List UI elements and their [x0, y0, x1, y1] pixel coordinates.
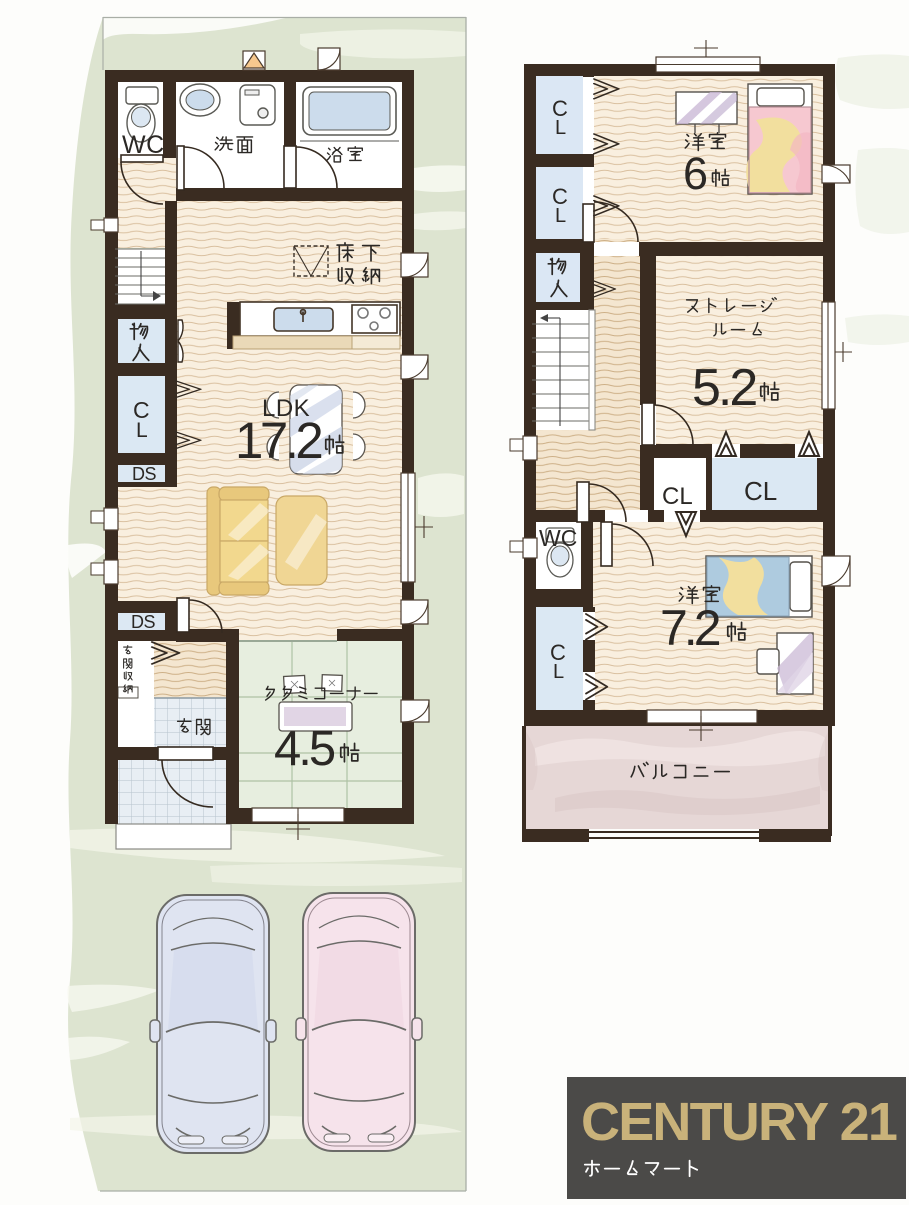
svg-text:CENTURY 21: CENTURY 21: [581, 1092, 897, 1152]
svg-text:6: 6: [683, 148, 708, 199]
svg-text:7.2: 7.2: [660, 600, 720, 656]
svg-text:5.2: 5.2: [692, 359, 756, 417]
svg-text:4.5: 4.5: [274, 722, 335, 776]
svg-text:CL: CL: [662, 483, 693, 510]
svg-text:WC: WC: [539, 525, 577, 551]
svg-text:DS: DS: [131, 612, 155, 632]
svg-text:CL: CL: [744, 476, 777, 506]
svg-text:WC: WC: [122, 131, 165, 159]
svg-text:L: L: [555, 117, 566, 139]
svg-text:L: L: [553, 661, 564, 683]
svg-text:DS: DS: [132, 464, 156, 484]
svg-text:17.2: 17.2: [235, 412, 321, 469]
svg-text:L: L: [136, 419, 148, 442]
svg-text:L: L: [555, 205, 566, 227]
